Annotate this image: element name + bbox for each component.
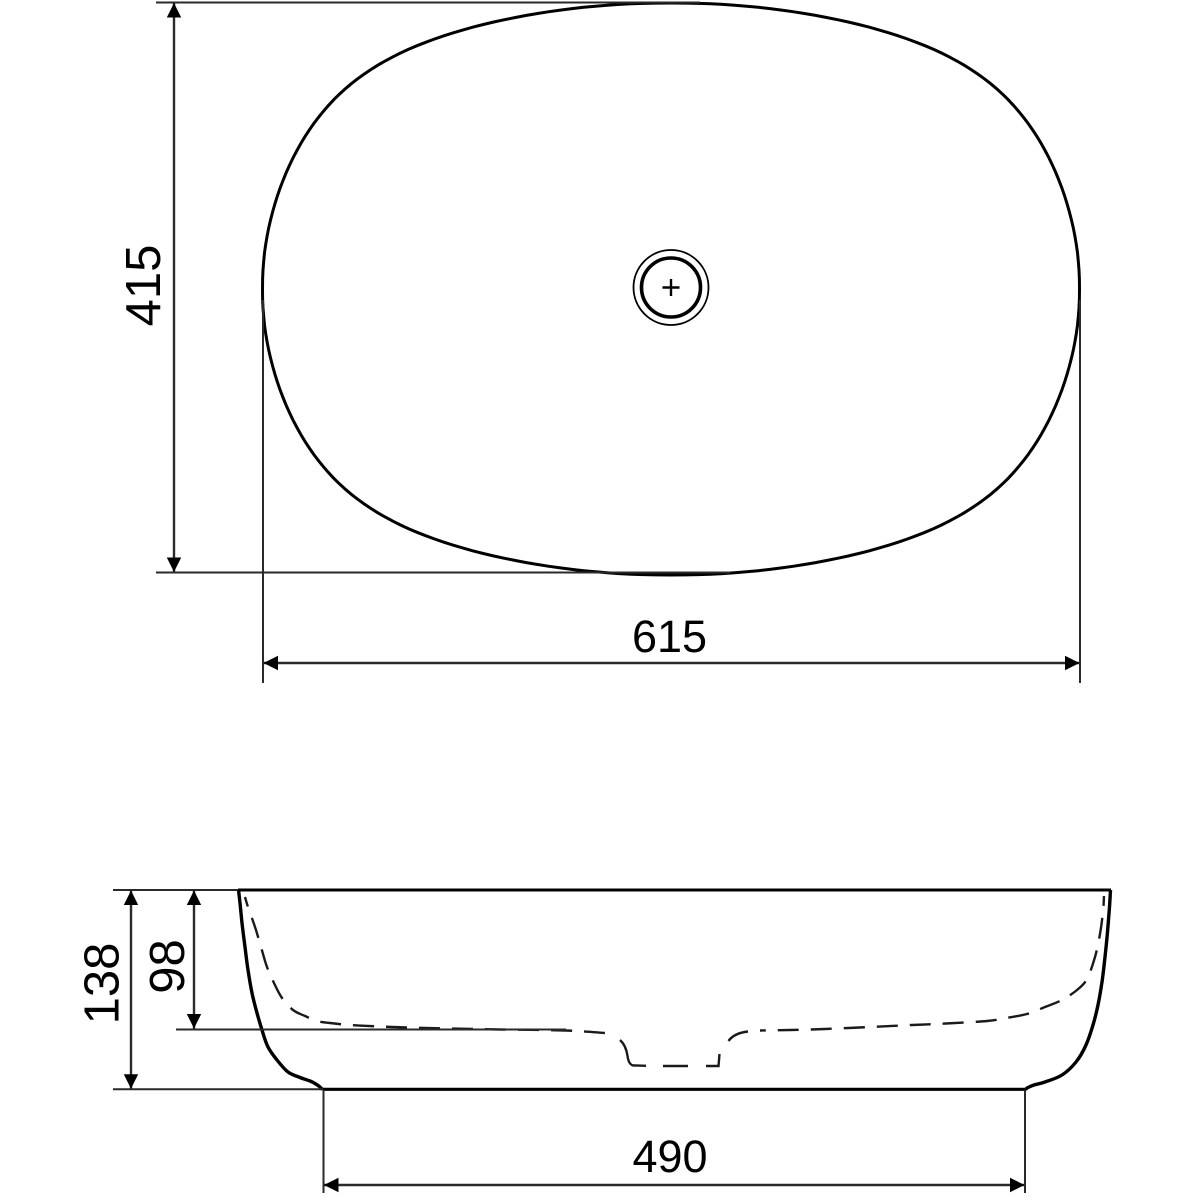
svg-text:490: 490 — [632, 1131, 707, 1182]
svg-text:138: 138 — [76, 943, 130, 1025]
svg-text:415: 415 — [117, 245, 171, 327]
svg-text:98: 98 — [141, 939, 195, 994]
svg-text:615: 615 — [632, 611, 707, 662]
